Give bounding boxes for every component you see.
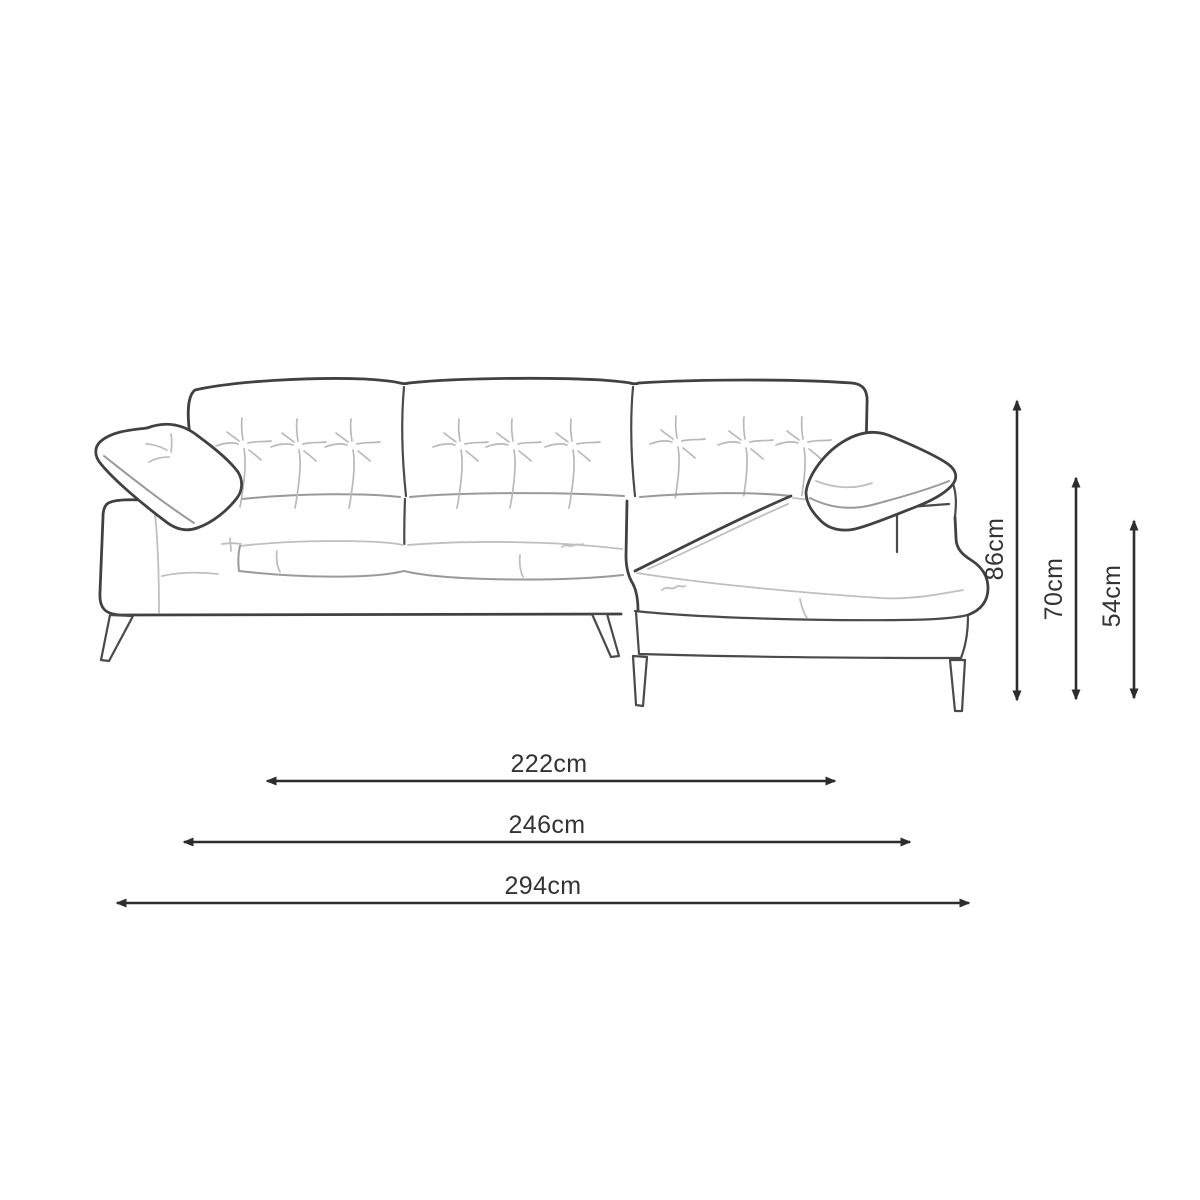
sofa-right-leg bbox=[592, 614, 619, 657]
right-side-edge bbox=[953, 484, 956, 517]
dim-label-vertical-3: 54cm bbox=[1098, 565, 1126, 628]
sofa-dimension-diagram: 86cm 70cm 54cm 222cm 246cm bbox=[0, 0, 1200, 1200]
vertical-dimension-3: 54cm bbox=[1098, 521, 1134, 698]
sofa-left-leg bbox=[101, 615, 133, 661]
dimension-diagram-canvas: 86cm 70cm 54cm 222cm 246cm bbox=[0, 0, 1200, 1200]
dim-label-horizontal-1: 222cm bbox=[510, 750, 587, 778]
horizontal-dimension-2: 246cm bbox=[184, 811, 910, 842]
vertical-dimension-2: 70cm bbox=[1040, 478, 1076, 699]
left-arm-panel-seam bbox=[155, 514, 159, 613]
chaise-front-right-leg bbox=[950, 660, 965, 711]
sofa-illustration bbox=[96, 378, 989, 711]
dim-label-vertical-2: 70cm bbox=[1040, 558, 1068, 621]
left-arm-base-seam bbox=[162, 573, 218, 576]
dim-label-horizontal-3: 294cm bbox=[504, 872, 581, 900]
dim-label-vertical-1: 86cm bbox=[981, 518, 1009, 581]
vertical-dimension-1: 86cm bbox=[981, 401, 1017, 700]
dimension-annotations: 86cm 70cm 54cm 222cm 246cm bbox=[117, 401, 1134, 903]
seat-cushions-fill bbox=[240, 541, 624, 580]
back-seat-junction bbox=[242, 493, 624, 499]
horizontal-dimension-3: 294cm bbox=[117, 872, 969, 903]
dim-label-horizontal-2: 246cm bbox=[508, 811, 585, 839]
chaise-fill bbox=[626, 495, 989, 658]
chaise-front-left-leg bbox=[633, 656, 647, 706]
horizontal-dimension-1: 222cm bbox=[267, 750, 835, 781]
seat-cushion-left-end bbox=[238, 546, 240, 571]
